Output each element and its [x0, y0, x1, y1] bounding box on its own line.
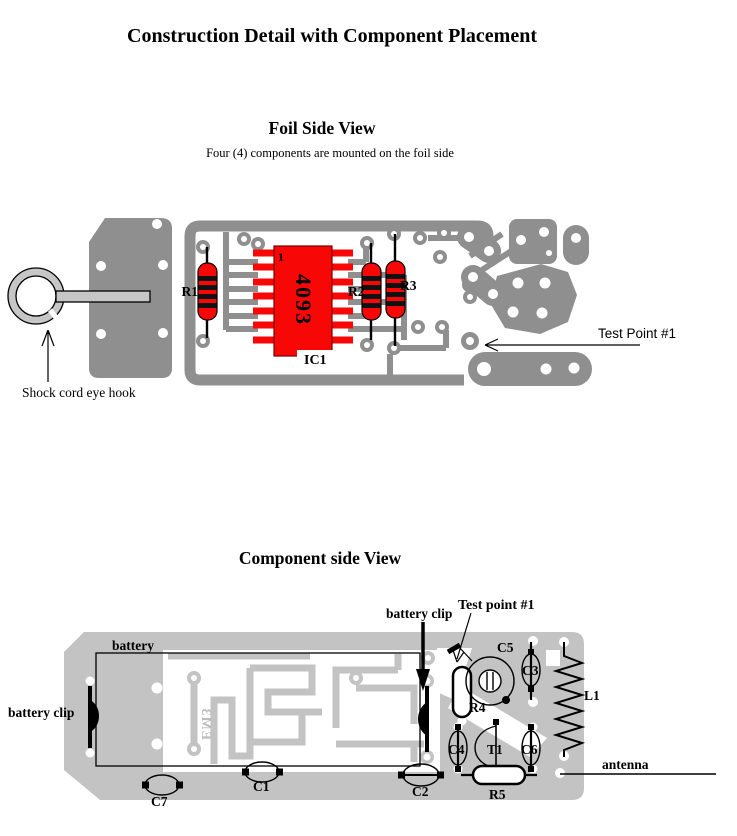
c7-label: C7 [151, 794, 168, 809]
battery-label: battery [112, 638, 154, 653]
battery-clip-top-label: battery clip [386, 606, 452, 621]
ic1-part-number: 4093 [291, 274, 316, 326]
eye-hook-label: Shock cord eye hook [22, 385, 136, 400]
ic1-ref-label: IC1 [304, 353, 327, 368]
t1-label: T1 [487, 742, 503, 757]
r4-label: R4 [469, 700, 486, 715]
r2-label: R2 [348, 284, 365, 299]
ic1-pin1-mark: 1 [278, 250, 284, 264]
test-point-label: Test Point #1 [598, 326, 676, 341]
battery-clip-left-label: battery clip [8, 705, 74, 720]
r3-label: R3 [400, 278, 417, 293]
c3-label: C3 [522, 663, 539, 678]
foil-view-heading: Foil Side View [122, 118, 522, 139]
component-view-heading: Component side View [120, 548, 520, 569]
antenna-label: antenna [602, 757, 649, 772]
component-side-view: EM3 battery battery clip battery clip Te… [8, 598, 716, 809]
c5-label: C5 [497, 640, 514, 655]
c2-label: C2 [412, 784, 429, 799]
eye-hook-arrow [42, 330, 54, 382]
page-title: Construction Detail with Component Place… [0, 25, 664, 48]
r5-label: R5 [489, 787, 506, 802]
l1-label: L1 [584, 688, 600, 703]
eye-hook-rod [56, 291, 150, 302]
board-foil-text: EM3 [198, 707, 213, 740]
ic1-chip: 1 4093 IC1 [253, 246, 353, 368]
c4-label: C4 [448, 742, 465, 757]
test-point-label-component: Test point #1 [458, 598, 535, 613]
r1-label: R1 [182, 284, 199, 299]
foil-side-view: Shock cord eye hook 1 4093 IC1 [8, 218, 676, 400]
r1-resistor [198, 247, 217, 338]
foil-pad-cluster [464, 219, 592, 386]
c6-label: C6 [521, 742, 538, 757]
c1-label: C1 [253, 779, 270, 794]
foil-view-subheading: Four (4) components are mounted on the f… [130, 146, 530, 161]
